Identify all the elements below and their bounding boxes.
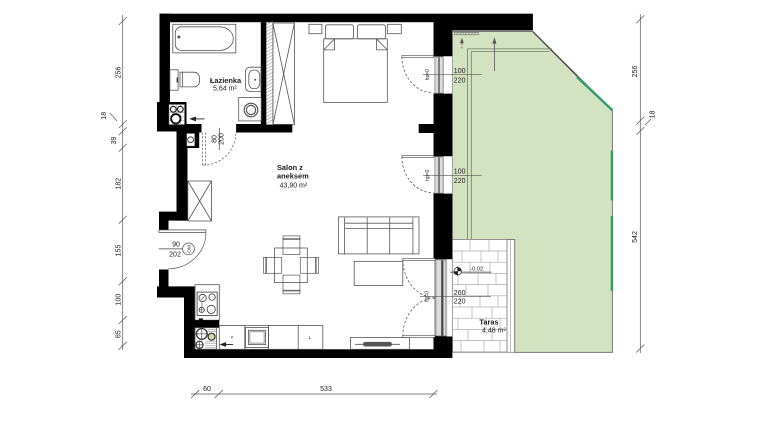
svg-text:220: 220 [454, 298, 466, 305]
svg-text:256: 256 [632, 66, 639, 78]
svg-text:43,90 m²: 43,90 m² [280, 183, 308, 190]
svg-text:Taras: Taras [479, 318, 498, 327]
svg-text:202: 202 [169, 252, 181, 259]
svg-text:533: 533 [320, 386, 332, 393]
svg-text:OM: OM [187, 245, 192, 253]
svg-text:220: 220 [454, 77, 466, 84]
svg-text:39: 39 [111, 137, 118, 145]
svg-text:4,48 m²: 4,48 m² [482, 328, 506, 335]
svg-text:100: 100 [454, 68, 466, 75]
svg-text:100: 100 [454, 169, 466, 176]
svg-text:155: 155 [115, 245, 122, 257]
svg-text:260: 260 [454, 290, 466, 297]
svg-text:hp=0: hp=0 [425, 291, 431, 302]
svg-text:200: 200 [218, 133, 225, 145]
svg-text:hp=0: hp=0 [425, 69, 431, 80]
svg-text:220: 220 [454, 178, 466, 185]
svg-text:Salon z: Salon z [277, 163, 303, 172]
svg-text:-0.02: -0.02 [470, 267, 483, 273]
svg-text:90: 90 [172, 242, 180, 249]
svg-text:100: 100 [115, 294, 122, 306]
svg-text:18: 18 [101, 112, 108, 120]
svg-text:182: 182 [115, 178, 122, 190]
svg-text:aneksem: aneksem [277, 172, 309, 181]
svg-text:5,64 m²: 5,64 m² [213, 86, 237, 93]
svg-text:542: 542 [632, 231, 639, 243]
svg-text:65: 65 [115, 330, 122, 338]
svg-text:256: 256 [115, 67, 122, 79]
svg-text:18: 18 [650, 111, 657, 119]
svg-text:hp=0: hp=0 [425, 169, 431, 180]
svg-text:60: 60 [203, 386, 211, 393]
svg-text:Łazienka: Łazienka [210, 76, 242, 85]
